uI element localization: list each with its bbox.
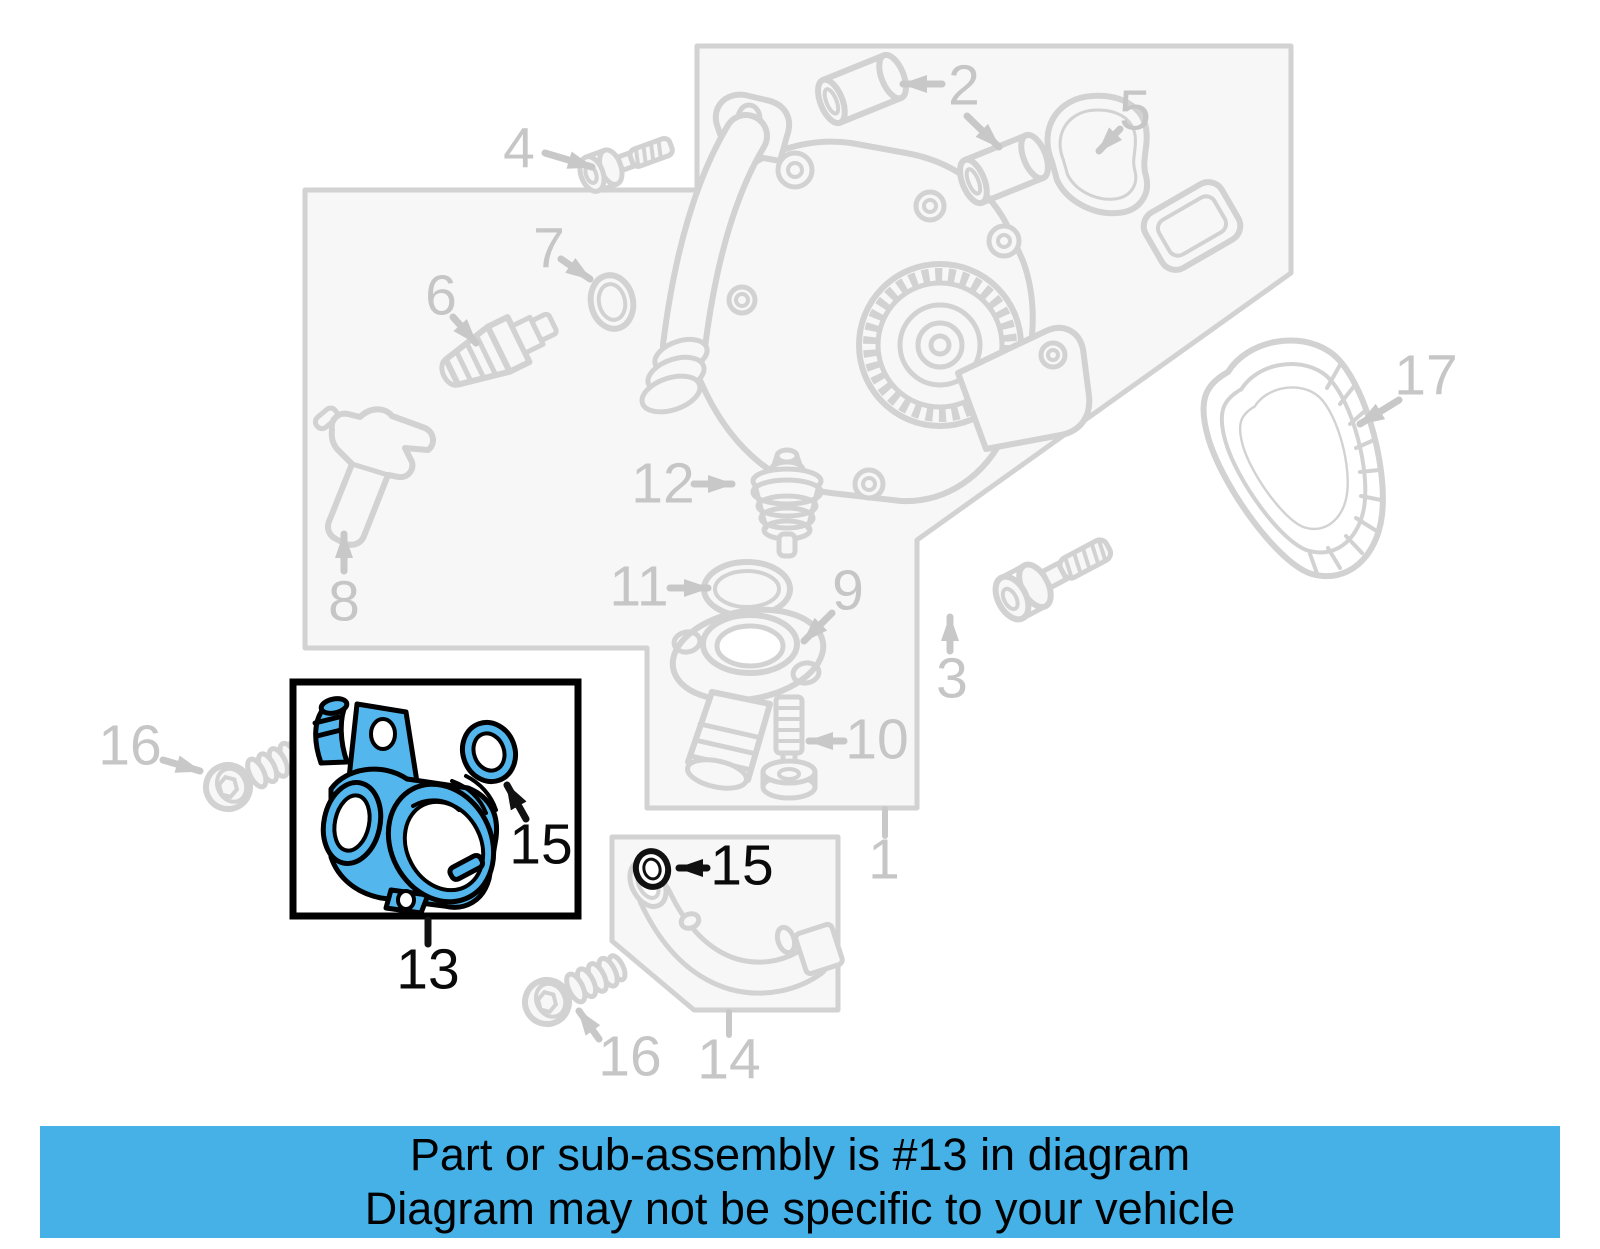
callout-14: 14 — [697, 1032, 760, 1089]
callout-10: 10 — [845, 712, 908, 769]
callout-4: 4 — [503, 121, 535, 178]
diagram-note-banner: Part or sub-assembly is #13 in diagram D… — [40, 1126, 1560, 1238]
callout-15-inset: 15 — [509, 817, 572, 874]
diagram-line-art — [0, 0, 1600, 1249]
callout-15-pipe: 15 — [710, 838, 773, 895]
parts-diagram-canvas: 4 2 5 7 6 17 12 11 9 8 3 10 16 1 15 15 1… — [0, 0, 1600, 1249]
callout-13: 13 — [396, 942, 459, 999]
callout-3: 3 — [936, 651, 968, 708]
callout-6: 6 — [425, 268, 457, 325]
part-17-belt-drawing — [1203, 340, 1382, 576]
callout-17: 17 — [1394, 348, 1457, 405]
callout-2: 2 — [948, 58, 980, 115]
callout-11: 11 — [609, 559, 668, 616]
part-16-bolt-bottom-drawing — [518, 945, 633, 1031]
callout-1: 1 — [868, 832, 900, 889]
callout-9: 9 — [832, 563, 864, 620]
banner-line-2: Diagram may not be specific to your vehi… — [365, 1182, 1235, 1236]
callout-12: 12 — [631, 456, 694, 513]
part-3-bolt-drawing — [989, 527, 1119, 625]
callout-16-bottom: 16 — [598, 1029, 661, 1086]
part-4-bolt-drawing — [576, 128, 678, 194]
callout-7: 7 — [533, 221, 565, 278]
callout-8: 8 — [328, 574, 360, 631]
callout-16-left: 16 — [98, 718, 161, 775]
banner-line-1: Part or sub-assembly is #13 in diagram — [410, 1128, 1190, 1182]
callout-5: 5 — [1119, 83, 1151, 140]
